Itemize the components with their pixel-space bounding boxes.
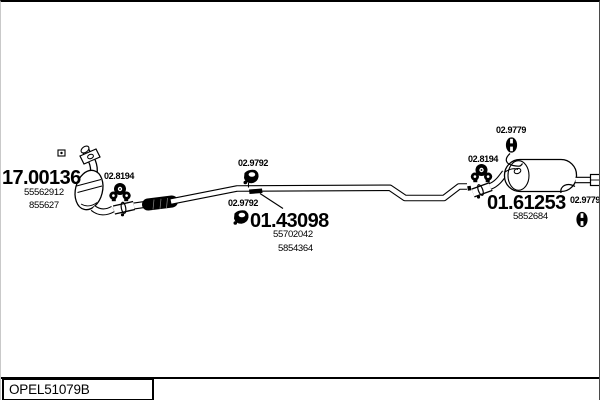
fitting-code-grommet-rear: 02.9779 — [570, 196, 600, 205]
oe-number: 55702042 — [273, 230, 313, 240]
flex-coupling — [148, 202, 172, 205]
oe-number: 55562912 — [24, 188, 64, 198]
oe-number: 5854364 — [278, 244, 313, 254]
part-number-catalyst: 17.00136 — [2, 168, 81, 188]
centre-pipe-drawing — [171, 183, 471, 209]
rear-silencer-drawing — [490, 154, 600, 194]
oe-number: 855627 — [29, 201, 59, 211]
part-number-centre-pipe: 01.43098 — [250, 211, 329, 231]
exhaust-parts-diagram-page: 17.00136 55562912 855627 01.43098 557020… — [0, 0, 600, 400]
rubber-grommet-icon — [506, 137, 517, 152]
gasket-marker-dot — [60, 152, 62, 154]
fitting-code-hanger-upper: 02.9792 — [238, 159, 268, 168]
oe-number: 5852684 — [513, 212, 548, 222]
rubber-hanger-icon — [234, 210, 249, 225]
fitting-code-clamp-rear: 02.8194 — [468, 155, 498, 164]
front-connector-sleeve — [114, 202, 134, 216]
fitting-code-grommet-front: 02.9779 — [496, 126, 526, 135]
part-number-rear-silencer: 01.61253 — [487, 193, 566, 213]
silencer-body — [505, 160, 577, 192]
catalog-code: OPEL51079B — [9, 382, 90, 397]
rubber-grommet-icon — [576, 212, 587, 227]
rubber-hanger-icon — [244, 170, 259, 185]
clamp-icon — [471, 164, 492, 182]
leader-line — [260, 194, 283, 209]
fitting-code-clamp-front: 02.8194 — [104, 172, 134, 181]
catalog-code-box: OPEL51079B — [2, 378, 154, 400]
fitting-code-hanger-lower: 02.9792 — [228, 199, 258, 208]
clamp-icon — [109, 183, 130, 201]
